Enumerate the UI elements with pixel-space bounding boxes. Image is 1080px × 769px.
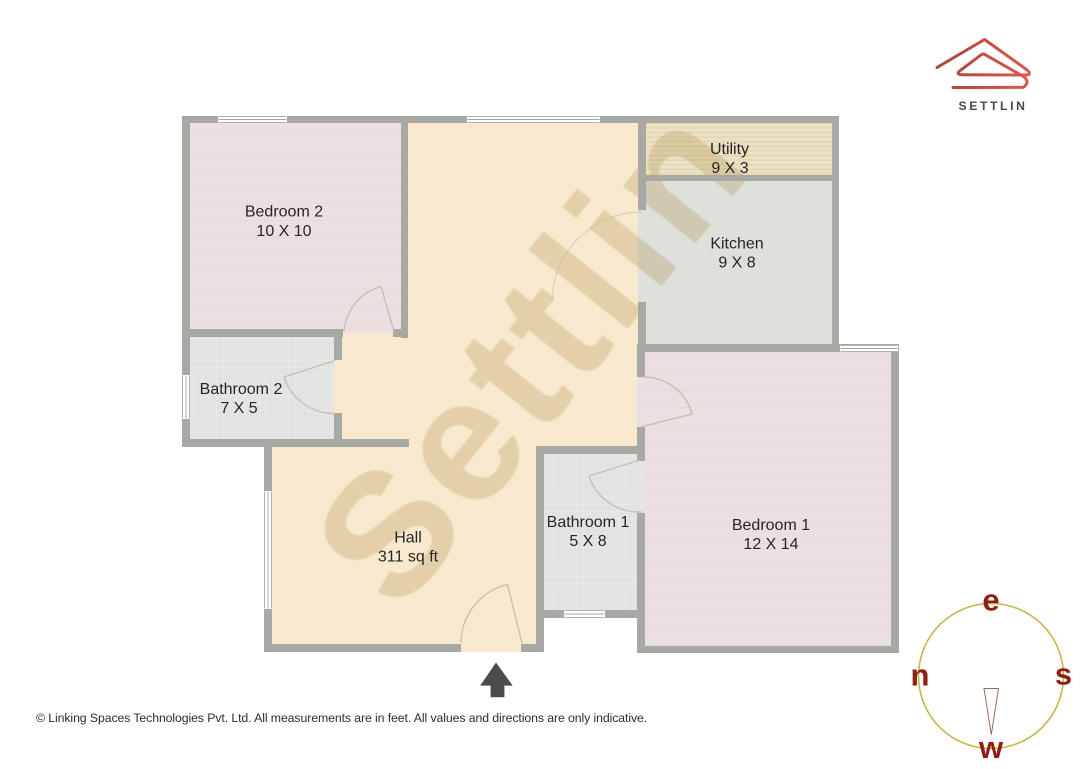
svg-text:12 X 14: 12 X 14 — [743, 536, 798, 553]
svg-text:© Linking Spaces Technologies: © Linking Spaces Technologies Pvt. Ltd. … — [36, 711, 647, 725]
svg-text:SETTLIN: SETTLIN — [959, 99, 1028, 113]
svg-text:Bathroom 1: Bathroom 1 — [547, 514, 630, 531]
svg-text:5 X 8: 5 X 8 — [569, 533, 606, 550]
svg-text:n: n — [911, 658, 930, 693]
svg-text:e: e — [982, 583, 999, 618]
svg-text:w: w — [978, 730, 1004, 764]
svg-text:9 X 8: 9 X 8 — [718, 255, 755, 272]
svg-text:10 X 10: 10 X 10 — [256, 223, 311, 240]
svg-text:311 sq ft: 311 sq ft — [378, 549, 439, 566]
svg-text:Utility: Utility — [710, 141, 749, 158]
svg-text:Hall: Hall — [394, 530, 422, 547]
svg-text:Bathroom 2: Bathroom 2 — [200, 381, 283, 398]
svg-text:Kitchen: Kitchen — [710, 236, 763, 253]
svg-text:s: s — [1055, 657, 1072, 692]
svg-text:7 X 5: 7 X 5 — [220, 400, 257, 417]
svg-text:Bedroom 1: Bedroom 1 — [732, 517, 810, 534]
svg-text:9 X 3: 9 X 3 — [711, 160, 748, 177]
svg-text:Bedroom 2: Bedroom 2 — [245, 204, 323, 221]
